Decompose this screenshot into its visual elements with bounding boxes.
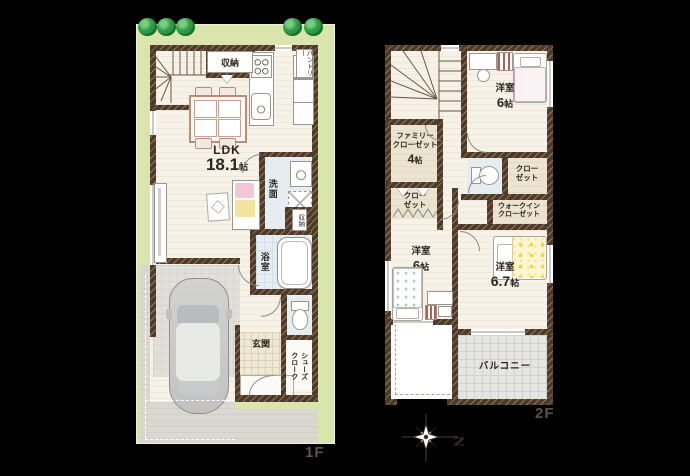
family-closet-size: 4帖	[389, 150, 441, 168]
bedroom3-label: 洋室	[481, 262, 529, 273]
stove	[251, 55, 272, 78]
tv-board	[154, 183, 167, 263]
door-mark	[221, 75, 233, 83]
closet-mid-label: 収納	[296, 214, 303, 227]
bed-pillow	[396, 308, 419, 319]
desk	[427, 291, 453, 305]
wall	[235, 395, 318, 402]
pantry-label: パントリー	[298, 50, 311, 77]
washroom-label: 洗面	[267, 171, 278, 207]
cupboard	[293, 78, 314, 125]
car-rear-window	[178, 381, 218, 395]
family-closet-size-unit: 帖	[414, 156, 422, 165]
window	[385, 261, 391, 311]
car-roof	[176, 323, 220, 381]
car-mirror	[166, 309, 172, 319]
bedroom3-size-number: 6.7	[491, 273, 510, 289]
place-setting	[194, 100, 217, 118]
floor1-label: 1F	[305, 444, 325, 461]
bed	[392, 267, 423, 321]
ldk-size-number: 18.1	[206, 155, 239, 174]
wall	[281, 293, 287, 340]
pantry-box: パントリー	[296, 49, 313, 78]
lot-1f: パントリー 収納 LDK 18.1帖	[137, 25, 334, 443]
bed-blanket	[393, 268, 422, 308]
compass: N	[400, 412, 470, 468]
closet-top-label: 収納	[221, 56, 239, 69]
wall	[385, 399, 397, 405]
floor2-label: 2F	[535, 405, 555, 422]
closet-right-label: クロー ゼット	[507, 164, 547, 182]
dining-table	[189, 95, 247, 143]
tree-icon	[157, 18, 176, 36]
tv	[158, 188, 161, 256]
sofa	[232, 180, 260, 230]
closet-top-box: 収納	[207, 51, 253, 73]
sofa-cushion-pink	[235, 183, 254, 198]
wall	[461, 45, 467, 157]
parking-line	[145, 275, 146, 439]
window	[547, 61, 553, 107]
place-setting	[218, 119, 241, 137]
window	[150, 111, 156, 135]
parking-line	[145, 439, 235, 440]
window	[275, 45, 292, 51]
tree-icon	[283, 18, 302, 36]
table-decor	[211, 200, 225, 214]
tree-icon	[138, 18, 157, 36]
window	[547, 245, 553, 283]
place-setting	[218, 100, 241, 118]
closet-mid-box: 収納	[292, 209, 307, 231]
bed-pillow	[520, 57, 541, 67]
entrance-label: 玄関	[241, 339, 281, 350]
bookshelf	[497, 52, 513, 71]
bedroom2-label: 洋室	[401, 246, 441, 257]
kitchen-sink	[251, 93, 271, 120]
door-mark	[417, 188, 429, 196]
floor-plan-image: パントリー 収納 LDK 18.1帖	[0, 0, 690, 476]
bedroom3-size: 6.7帖	[477, 273, 533, 291]
driveway-approach	[140, 409, 318, 443]
place-setting	[194, 119, 217, 137]
walk-in-closet-label: ウォークイン クローゼット	[491, 203, 547, 220]
side-table	[206, 192, 230, 221]
desk	[469, 53, 497, 70]
tree-icon	[176, 18, 195, 36]
wall	[385, 182, 443, 188]
balcony-label: バルコニー	[469, 361, 541, 372]
door-mark	[397, 188, 409, 196]
window	[471, 329, 525, 335]
bedroom1-size: 6帖	[483, 94, 527, 112]
bedroom3-size-unit: 帖	[510, 278, 519, 288]
bedroom1-size-unit: 帖	[504, 99, 513, 109]
bathtub-inner	[281, 241, 308, 285]
hanger-rack	[393, 207, 437, 219]
car-mirror	[226, 309, 232, 319]
compass-n-label: N	[450, 436, 466, 447]
plan-2f: 洋室 6帖 ファミリー クローゼット 4帖 クロー ゼット ウォークイン クロー…	[385, 45, 553, 405]
sofa-cushion-yellow	[235, 200, 255, 217]
bedroom1-label: 洋室	[483, 83, 527, 94]
toilet-bowl	[292, 309, 308, 330]
wall	[461, 194, 553, 200]
bathroom-label: 浴室	[259, 246, 270, 278]
desk-chair	[477, 69, 490, 82]
shoes-cloak-label: シューズ クローク	[289, 344, 309, 388]
wall	[452, 224, 553, 230]
roof-void-dash	[395, 324, 450, 395]
rug	[425, 305, 437, 320]
wall	[281, 340, 286, 395]
wall	[235, 325, 240, 395]
tree-icon	[304, 18, 323, 36]
bathtub	[277, 237, 312, 289]
roof-void	[391, 322, 452, 399]
car	[169, 278, 229, 414]
stairs-2f	[391, 51, 461, 119]
vanity-sink	[290, 161, 312, 187]
parking-line	[145, 400, 235, 401]
car-windshield	[177, 305, 219, 323]
desk-chair	[438, 306, 452, 317]
